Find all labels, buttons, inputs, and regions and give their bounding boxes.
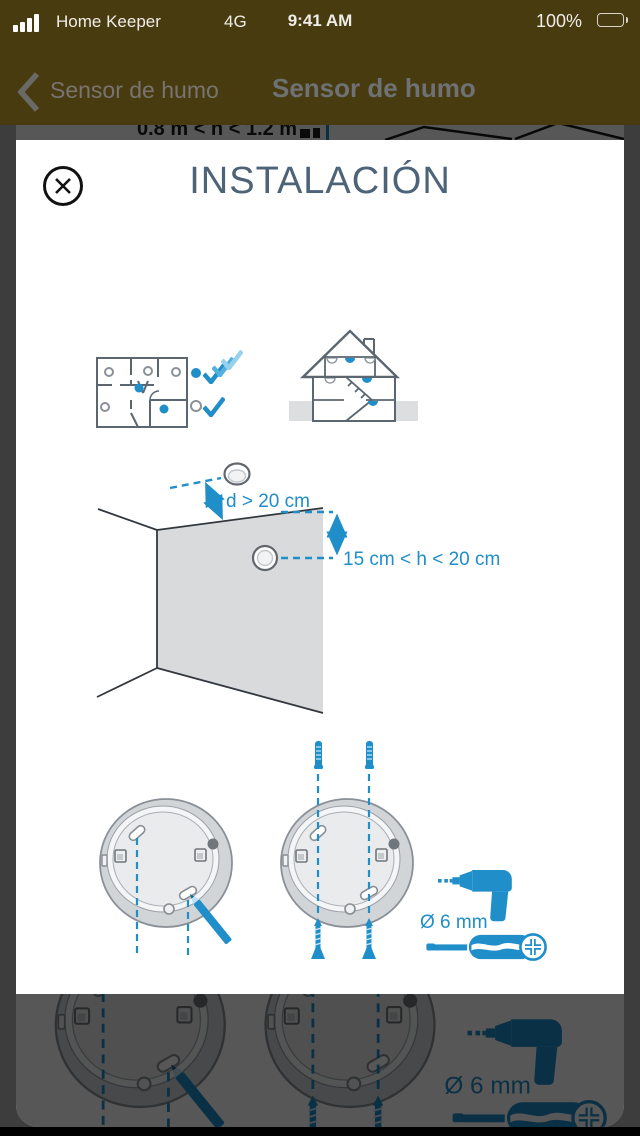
ceiling-detector-icon bbox=[225, 464, 250, 485]
ceiling-distance-label: d > 20 cm bbox=[226, 491, 310, 512]
house-cross-section-icon bbox=[286, 325, 421, 425]
detector-dot bbox=[135, 384, 144, 393]
wall-height-label: 15 cm < h < 20 cm bbox=[343, 549, 500, 570]
mounting-step-mark-holes bbox=[90, 738, 240, 960]
wall-detector-icon bbox=[253, 546, 277, 570]
chevron-left-icon bbox=[16, 70, 42, 114]
battery-percent-label: 100% bbox=[536, 11, 582, 32]
nav-bar: Sensor de humo Sensor de humo bbox=[0, 44, 640, 125]
screwdriver-icon bbox=[426, 935, 533, 959]
phone-screen: Home Keeper 4G 9:41 AM 100% Sensor de hu… bbox=[0, 0, 640, 1136]
screw-icon bbox=[311, 918, 325, 959]
battery-nub bbox=[626, 17, 629, 23]
drill-diameter-label: Ø 6 mm bbox=[420, 912, 488, 933]
battery-icon bbox=[597, 13, 624, 27]
phillips-head-icon bbox=[520, 934, 545, 959]
required-tools: Ø 6 mm bbox=[415, 862, 575, 962]
wall-anchor-icon bbox=[365, 741, 374, 769]
mounting-base-icon bbox=[281, 799, 413, 927]
status-bar: Home Keeper 4G 9:41 AM 100% bbox=[0, 0, 640, 44]
detector-dot bbox=[160, 405, 169, 414]
screen-bottom-edge bbox=[0, 1127, 640, 1136]
back-button-label: Sensor de humo bbox=[50, 77, 219, 104]
mounting-step-fix-screws bbox=[272, 738, 422, 960]
page-title: Sensor de humo bbox=[272, 73, 476, 104]
modal-title: INSTALACIÓN bbox=[16, 160, 624, 203]
wall-anchor-icon bbox=[314, 741, 323, 769]
wall-placement-diagram: d > 20 cm 15 cm < h < 20 cm bbox=[85, 455, 540, 720]
checkmark-icon bbox=[204, 398, 224, 415]
mounting-base-icon bbox=[100, 799, 232, 927]
checkmarks-icon bbox=[204, 351, 242, 382]
back-button[interactable]: Sensor de humo bbox=[12, 68, 262, 120]
floor-plan-placement-icon bbox=[92, 347, 252, 433]
installation-modal: INSTALACIÓN bbox=[16, 140, 624, 994]
